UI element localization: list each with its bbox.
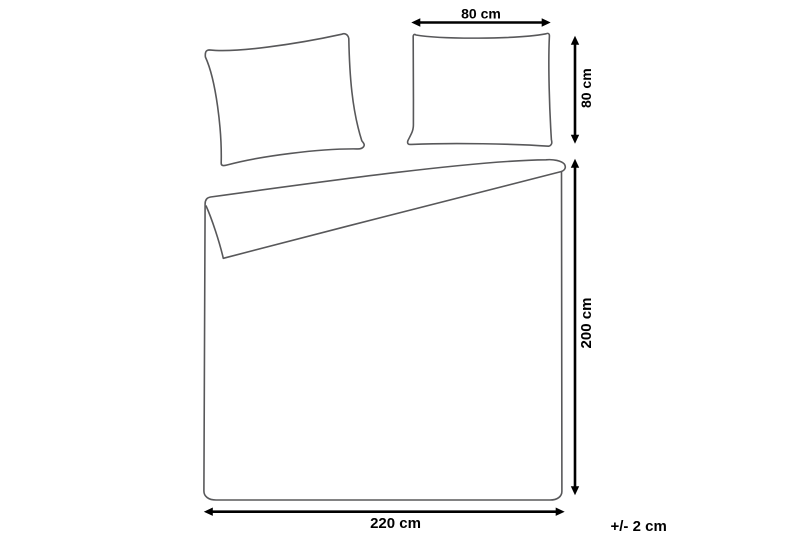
svg-text:+/- 2 cm: +/- 2 cm: [611, 518, 667, 533]
svg-text:80 cm: 80 cm: [578, 68, 594, 108]
svg-text:200 cm: 200 cm: [578, 298, 595, 349]
svg-text:220 cm: 220 cm: [370, 515, 421, 532]
svg-text:80 cm: 80 cm: [461, 6, 501, 22]
